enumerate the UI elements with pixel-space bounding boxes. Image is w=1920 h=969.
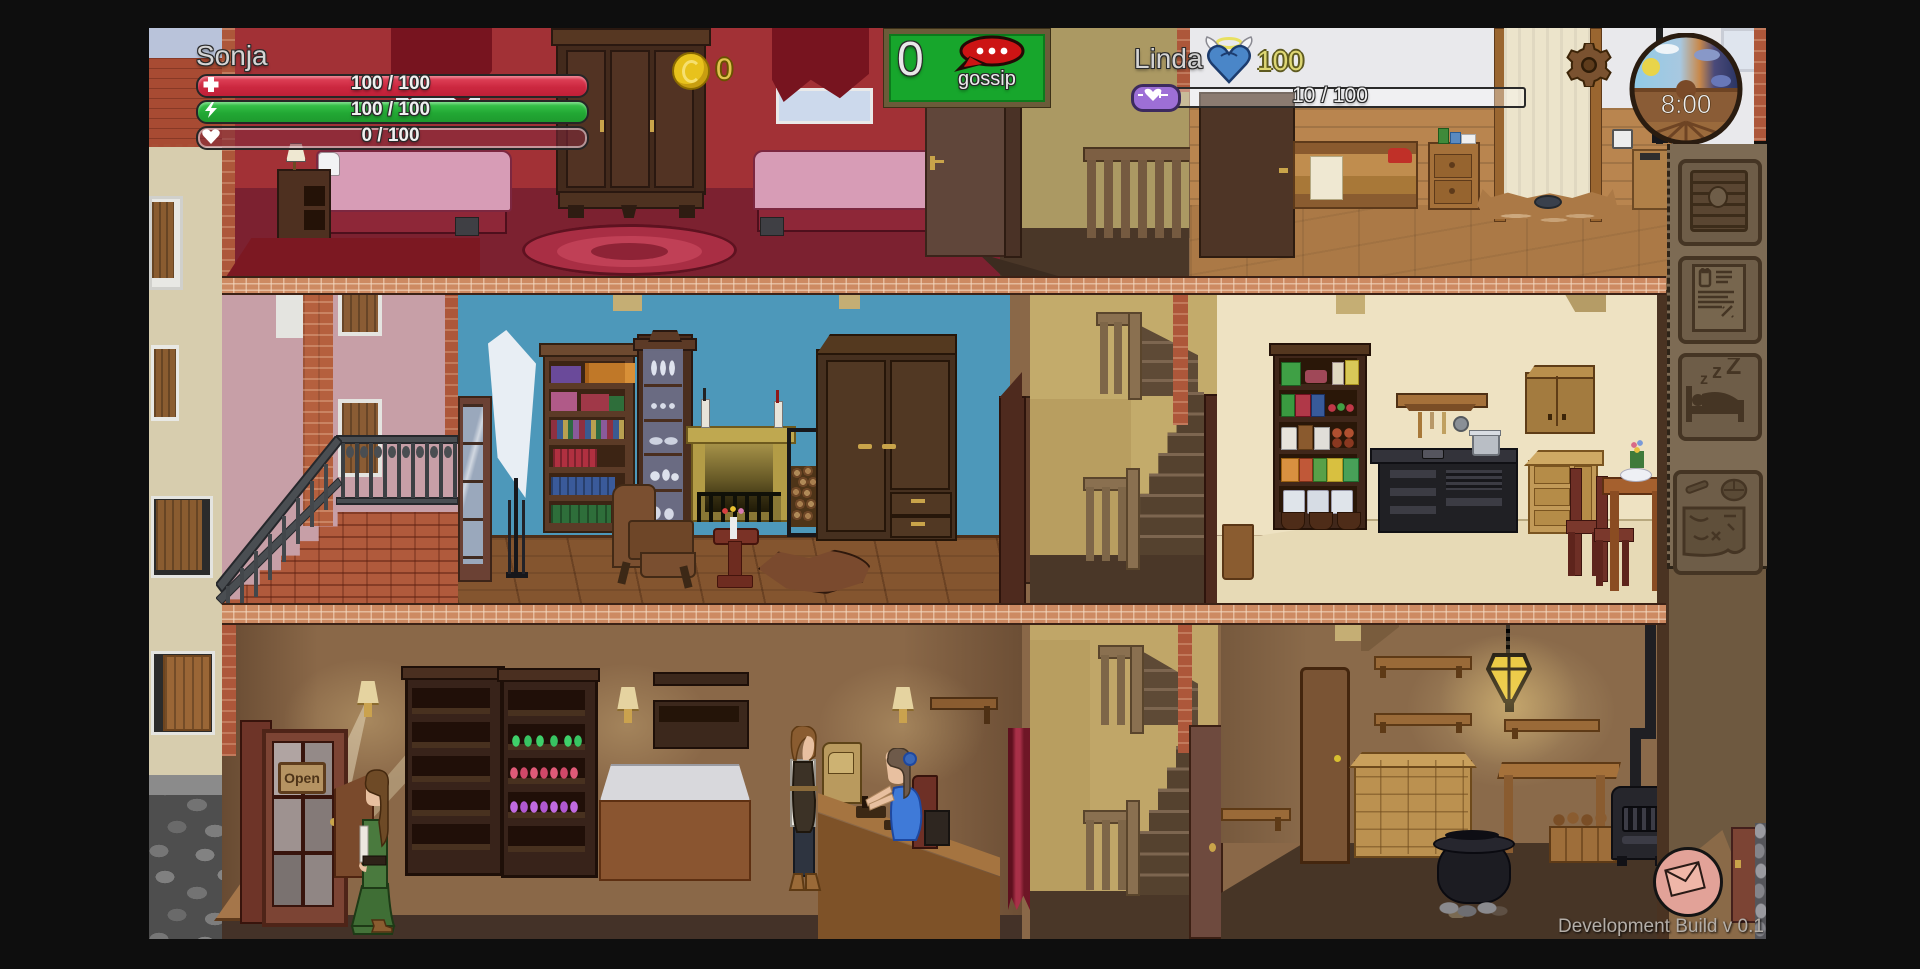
svg-text:Z: Z [1726, 358, 1741, 380]
svg-text:z: z [1700, 371, 1708, 388]
svg-text:z: z [1712, 361, 1722, 383]
svg-text:8:00: 8:00 [1661, 89, 1712, 119]
